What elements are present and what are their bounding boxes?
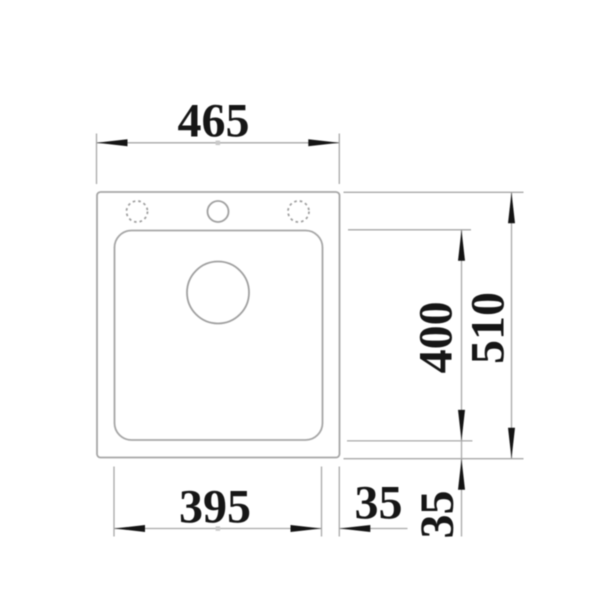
svg-text:510: 510 <box>462 292 515 364</box>
svg-text:395: 395 <box>179 481 251 534</box>
svg-text:400: 400 <box>410 301 463 373</box>
svg-text:465: 465 <box>178 95 250 148</box>
svg-text:35: 35 <box>411 491 464 539</box>
svg-text:35: 35 <box>355 477 403 530</box>
